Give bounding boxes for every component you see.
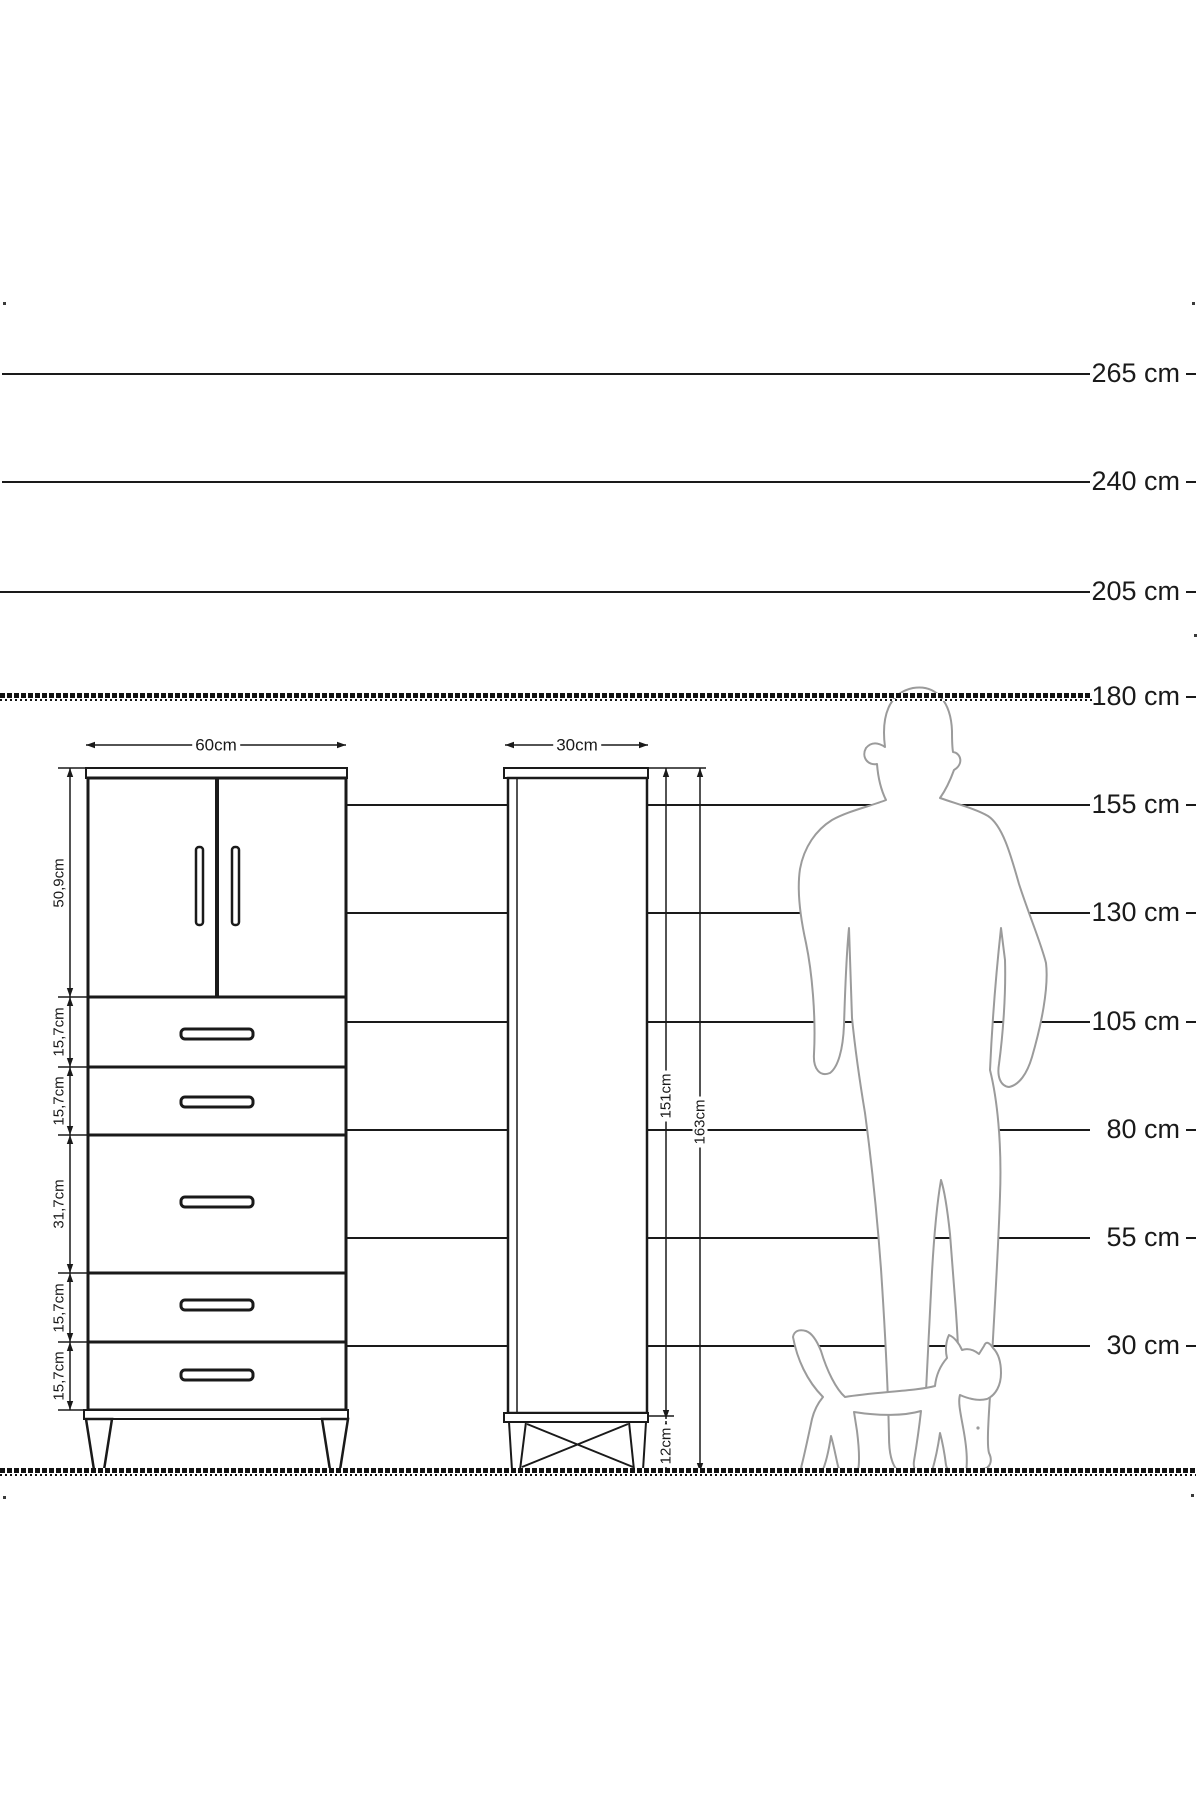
- cabinet-leg-right: [322, 1419, 348, 1470]
- drawer-handle-5: [181, 1370, 253, 1380]
- cat-detail-dot: [976, 1426, 979, 1429]
- side-width-label: 30cm: [553, 737, 601, 754]
- total-height-label: 163cm: [693, 1096, 708, 1147]
- drawer-handle-2: [181, 1097, 253, 1107]
- side-body: [508, 778, 647, 1413]
- scale-label-30: 30 cm: [1085, 1331, 1180, 1360]
- cabinet-leg-left: [86, 1419, 112, 1470]
- scale-label-205: 205 cm: [1085, 577, 1180, 606]
- scale-tick: [1186, 1237, 1196, 1239]
- scale-label-130: 130 cm: [1085, 898, 1180, 927]
- side-leg-brace-1: [527, 1424, 633, 1467]
- person-outline: [799, 687, 1047, 1471]
- scale-label-240: 240 cm: [1085, 467, 1180, 496]
- artifact-dot: [1194, 634, 1197, 637]
- artifact-dot: [1191, 1494, 1194, 1497]
- scale-tick: [1186, 804, 1196, 806]
- scale-tick: [1186, 481, 1196, 483]
- cabinet-bottom-board: [84, 1410, 348, 1419]
- cabinet-front-view: [84, 768, 348, 1470]
- line-art: [0, 0, 1200, 1800]
- leg-height-label: 12cm: [659, 1425, 674, 1468]
- drawer-handle-3: [181, 1197, 253, 1207]
- section-label-drawer-3: 31,7cm: [52, 1176, 67, 1231]
- scale-tick: [1186, 373, 1196, 375]
- ground-hatch: [0, 1468, 1196, 1476]
- side-bottom-board: [504, 1413, 648, 1422]
- scale-label-80: 80 cm: [1085, 1115, 1180, 1144]
- drawer-handle-1: [181, 1029, 253, 1039]
- section-label-drawer-4: 15,7cm: [52, 1280, 67, 1335]
- scale-label-105: 105 cm: [1085, 1007, 1180, 1036]
- artifact-dot: [1192, 302, 1195, 305]
- door-handle-right: [232, 847, 239, 925]
- side-leg-brace-2: [522, 1424, 628, 1467]
- scale-tick: [1186, 1021, 1196, 1023]
- scale-tick: [1186, 1129, 1196, 1131]
- section-label-doors: 50,9cm: [52, 855, 67, 910]
- section-label-drawer-1: 15,7cm: [52, 1004, 67, 1059]
- side-leg-right: [629, 1422, 646, 1470]
- scale-tick: [1186, 696, 1196, 698]
- scale-label-265: 265 cm: [1085, 359, 1180, 388]
- dimension-diagram: 265 cm 240 cm 205 cm 180 cm 155 cm 130 c…: [0, 0, 1200, 1800]
- side-top-board: [504, 768, 648, 778]
- door-handle-left: [196, 847, 203, 925]
- ceiling-hatch: [0, 693, 1092, 701]
- person-silhouette: [799, 687, 1047, 1471]
- scale-tick: [1186, 1345, 1196, 1347]
- scale-tick: [1186, 591, 1196, 593]
- side-leg-left: [509, 1422, 526, 1470]
- drawer-handle-4: [181, 1300, 253, 1310]
- section-label-drawer-5: 15,7cm: [52, 1348, 67, 1403]
- scale-label-55: 55 cm: [1085, 1223, 1180, 1252]
- section-label-drawer-2: 15,7cm: [52, 1073, 67, 1128]
- artifact-dot: [3, 1496, 6, 1499]
- scale-label-180: 180 cm: [1085, 682, 1180, 711]
- body-height-label: 151cm: [659, 1070, 674, 1121]
- scale-label-155: 155 cm: [1085, 790, 1180, 819]
- artifact-dot: [3, 302, 6, 305]
- cabinet-side-view: [504, 768, 648, 1470]
- front-width-label: 60cm: [192, 737, 240, 754]
- scale-tick: [1186, 912, 1196, 914]
